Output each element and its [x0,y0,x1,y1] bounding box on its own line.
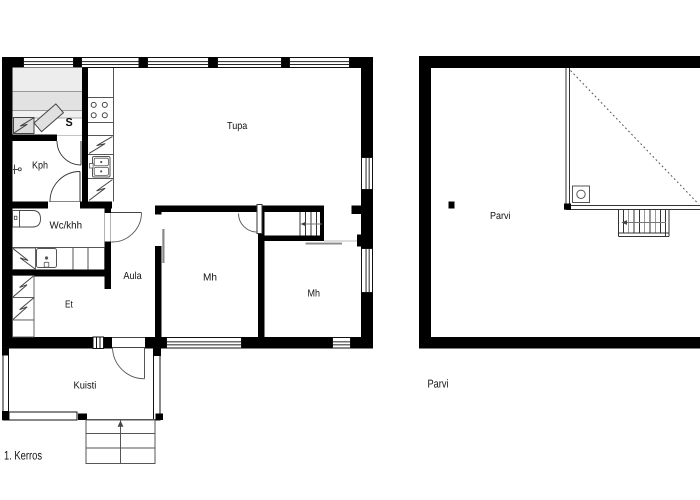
svg-text:Mh: Mh [308,289,321,300]
svg-text:Wc/khh: Wc/khh [50,221,83,232]
svg-text:1. Kerros: 1. Kerros [4,449,42,463]
svg-text:Parvi: Parvi [490,211,511,222]
svg-text:Kuisti: Kuisti [74,381,97,392]
svg-text:Mh: Mh [203,273,217,284]
svg-text:S: S [66,117,74,129]
svg-text:Tupa: Tupa [227,121,248,132]
svg-text:Et: Et [65,300,73,311]
svg-text:Kph: Kph [32,161,48,172]
svg-text:Parvi: Parvi [428,378,449,390]
svg-text:Aula: Aula [123,271,142,282]
